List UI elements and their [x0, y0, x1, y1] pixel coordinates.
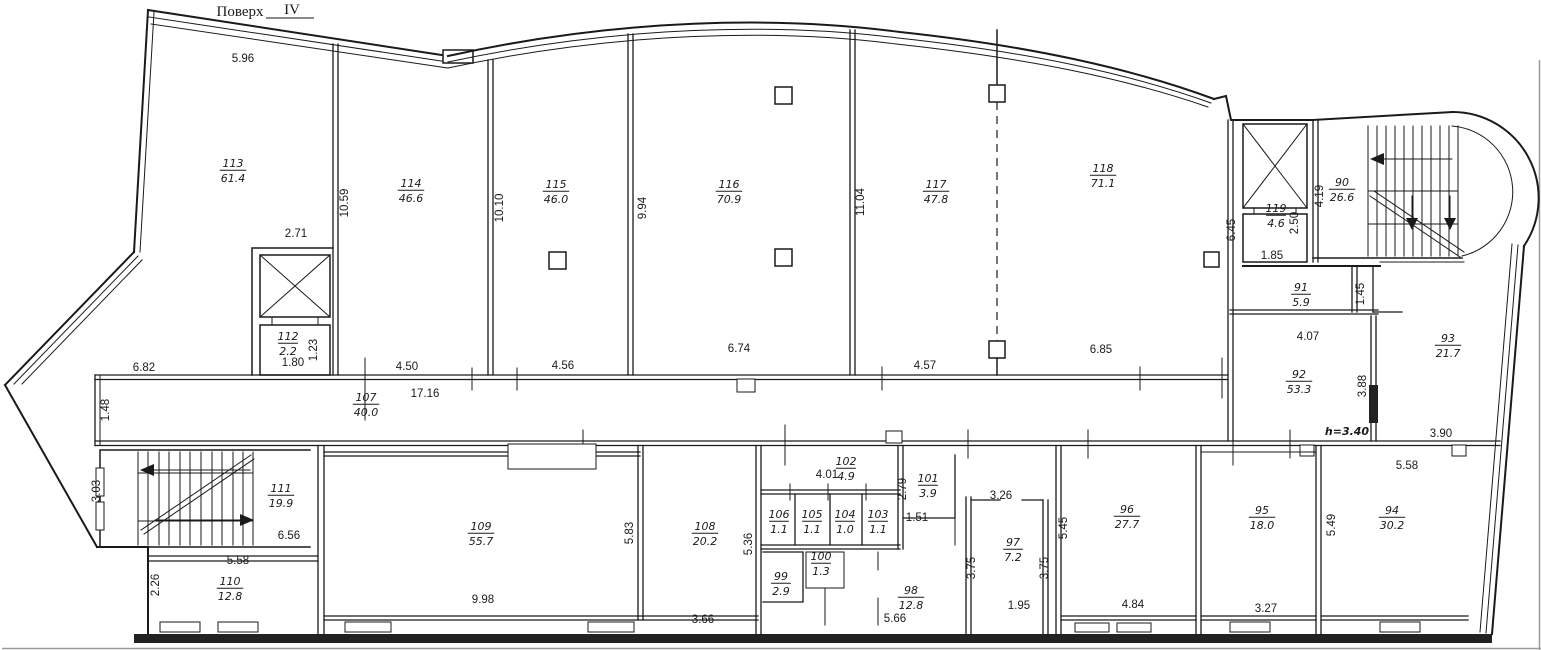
stair-stringer [141, 455, 254, 534]
dimension-label: 2.26 [150, 574, 162, 596]
column [549, 252, 566, 269]
dimension-label: 4.84 [1122, 599, 1145, 611]
dimension-label: 9.98 [472, 594, 494, 606]
room-number-100: 100 [811, 550, 832, 563]
stair-direction-arrow [240, 514, 254, 526]
window [588, 622, 634, 632]
dimension-label: 6.56 [278, 530, 300, 542]
room-number-97: 97 [1006, 536, 1020, 549]
room-area-99: 2.9 [772, 585, 790, 598]
dimension-label: 5.58 [227, 555, 249, 567]
door-opening [1452, 445, 1466, 456]
room-number-105: 105 [802, 508, 823, 521]
room-number-91: 91 [1294, 281, 1308, 294]
room-area-110: 12.8 [218, 590, 243, 603]
dimension-label: 5.45 [1058, 517, 1070, 539]
room-area-93: 21.7 [1436, 347, 1461, 360]
bottom-windows [160, 622, 1420, 632]
room-area-98: 12.8 [899, 599, 924, 612]
room-area-104: 1.0 [836, 523, 854, 536]
dimension-label: 6.82 [133, 362, 155, 374]
room-number-109: 109 [471, 520, 492, 533]
ceiling-step [508, 444, 596, 469]
stair-direction-arrow [140, 464, 154, 476]
dimension-label: 1.80 [282, 357, 304, 369]
room-number-93: 93 [1441, 332, 1455, 345]
room-number-104: 104 [835, 508, 856, 521]
room-area-118: 71.1 [1091, 177, 1116, 190]
title-block: Поверх IV [217, 2, 315, 20]
room-number-113: 113 [223, 157, 244, 170]
room-area-105: 1.1 [803, 523, 821, 536]
window [1380, 622, 1420, 632]
column [1204, 252, 1219, 267]
room-number-116: 116 [719, 178, 740, 191]
floor-plan-svg: Поверх IV h=3.40 11361.411446.611546.011… [0, 0, 1541, 650]
dimension-label: 4.56 [552, 360, 574, 372]
window [1117, 623, 1151, 632]
room-number-90: 90 [1335, 176, 1349, 189]
dimension-label: 4.19 [1314, 185, 1326, 207]
dimension-label: 4.50 [396, 361, 418, 373]
room-number-117: 117 [926, 178, 947, 191]
floor-plan-page: Поверх IV h=3.40 11361.411446.611546.011… [0, 0, 1541, 650]
dimension-label: 4.01 [816, 469, 838, 481]
room-area-119: 4.6 [1267, 217, 1285, 230]
room-area-113: 61.4 [221, 172, 246, 185]
window [1230, 622, 1270, 632]
bottom-outer-wall [134, 634, 1492, 643]
dimension-label: 6.85 [1090, 344, 1112, 356]
dimension-label: 2.71 [285, 228, 307, 240]
dimension-label: 3.75 [966, 557, 978, 579]
room-number-119: 119 [1266, 202, 1287, 215]
dimension-label: 5.36 [743, 533, 755, 555]
column [775, 87, 792, 104]
dimension-label: 1.85 [1261, 250, 1283, 262]
room-area-91: 5.9 [1292, 296, 1310, 309]
room-number-114: 114 [401, 177, 422, 190]
room-area-107: 40.0 [354, 406, 379, 419]
room-area-95: 18.0 [1250, 519, 1275, 532]
floor-number: IV [284, 2, 300, 18]
room-number-118: 118 [1093, 162, 1114, 175]
right-mid-walls [1230, 266, 1402, 441]
room-area-100: 1.3 [812, 565, 830, 578]
room-number-94: 94 [1385, 504, 1399, 517]
room-number-107: 107 [356, 391, 377, 404]
dimension-label: 5.83 [624, 522, 636, 544]
room-number-98: 98 [904, 584, 918, 597]
dimension-label: 4.07 [1297, 331, 1319, 343]
room-area-115: 46.0 [544, 193, 569, 206]
dimension-label: 1.23 [308, 339, 320, 361]
dimension-label: 3.90 [1430, 428, 1452, 440]
outer-walls [5, 10, 1539, 643]
dimension-label: 3.75 [1039, 557, 1051, 579]
dimension-label: 6.74 [728, 343, 751, 355]
room-number-103: 103 [868, 508, 889, 521]
room-area-96: 27.7 [1115, 518, 1140, 531]
height-note: h=3.40 [1325, 425, 1370, 438]
room-number-102: 102 [836, 455, 857, 468]
room-number-99: 99 [774, 570, 788, 583]
dimension-label: 2.79 [897, 478, 909, 500]
column [775, 249, 792, 266]
room-number-110: 110 [220, 575, 241, 588]
room-number-111: 111 [271, 482, 292, 495]
room-area-116: 70.9 [717, 193, 742, 206]
room-area-97: 7.2 [1004, 551, 1022, 564]
dimension-label: 4.57 [914, 360, 936, 372]
dimension-label: 5.49 [1326, 514, 1338, 536]
top-right-elevator-block [1243, 124, 1307, 262]
dimension-label: 3.26 [990, 490, 1012, 502]
dimension-label: 3.27 [1255, 603, 1277, 615]
door-opening [1300, 445, 1314, 456]
room-area-108: 20.2 [693, 535, 718, 548]
dimension-label: 1.48 [100, 399, 112, 421]
room-number-92: 92 [1292, 368, 1306, 381]
room-area-114: 46.6 [399, 192, 424, 205]
dimension-label: 2.50 [1289, 212, 1301, 234]
room-number-95: 95 [1255, 504, 1269, 517]
dimension-label: 10.59 [339, 189, 351, 218]
dimension-label: 17.16 [411, 388, 440, 400]
room-number-108: 108 [695, 520, 716, 533]
room-number-112: 112 [278, 330, 299, 343]
room-area-106: 1.1 [770, 523, 788, 536]
dimension-label: 1.45 [1355, 283, 1367, 305]
room-area-103: 1.1 [869, 523, 887, 536]
dimension-label: 5.58 [1396, 460, 1418, 472]
window [345, 622, 391, 632]
dimension-label: 5.66 [884, 613, 906, 625]
window [1075, 623, 1109, 632]
room-number-106: 106 [769, 508, 790, 521]
dimension-label: 3.88 [1357, 375, 1369, 397]
dimension-label: 1.51 [906, 512, 928, 524]
dimension-label: 6.45 [1226, 219, 1238, 241]
columns [549, 87, 1219, 269]
dimension-label: 10.10 [494, 194, 506, 223]
room-area-102: 4.9 [837, 470, 855, 483]
dimension-label: 5.96 [232, 53, 254, 65]
room-number-115: 115 [546, 178, 567, 191]
dimension-label: 9.94 [637, 196, 649, 219]
dimension-label: 3.03 [91, 480, 103, 502]
dimension-label: 11.04 [855, 187, 867, 216]
room-area-101: 3.9 [919, 487, 937, 500]
rounded-corner-wall [1452, 112, 1539, 246]
dimension-label: 1.95 [1008, 600, 1030, 612]
door-opening [737, 379, 755, 392]
room-area-90: 26.6 [1330, 191, 1355, 204]
dimension-label: 3.66 [692, 614, 714, 626]
room-area-94: 30.2 [1380, 519, 1405, 532]
page-title: Поверх [217, 4, 264, 20]
room-number-96: 96 [1120, 503, 1134, 516]
window [96, 502, 104, 530]
window [160, 622, 200, 632]
room-number-101: 101 [918, 472, 939, 485]
room-area-117: 47.8 [924, 193, 949, 206]
window [218, 622, 258, 632]
room-area-111: 19.9 [269, 497, 294, 510]
room-area-109: 55.7 [469, 535, 494, 548]
door-opening [886, 431, 902, 443]
room-area-92: 53.3 [1287, 383, 1312, 396]
